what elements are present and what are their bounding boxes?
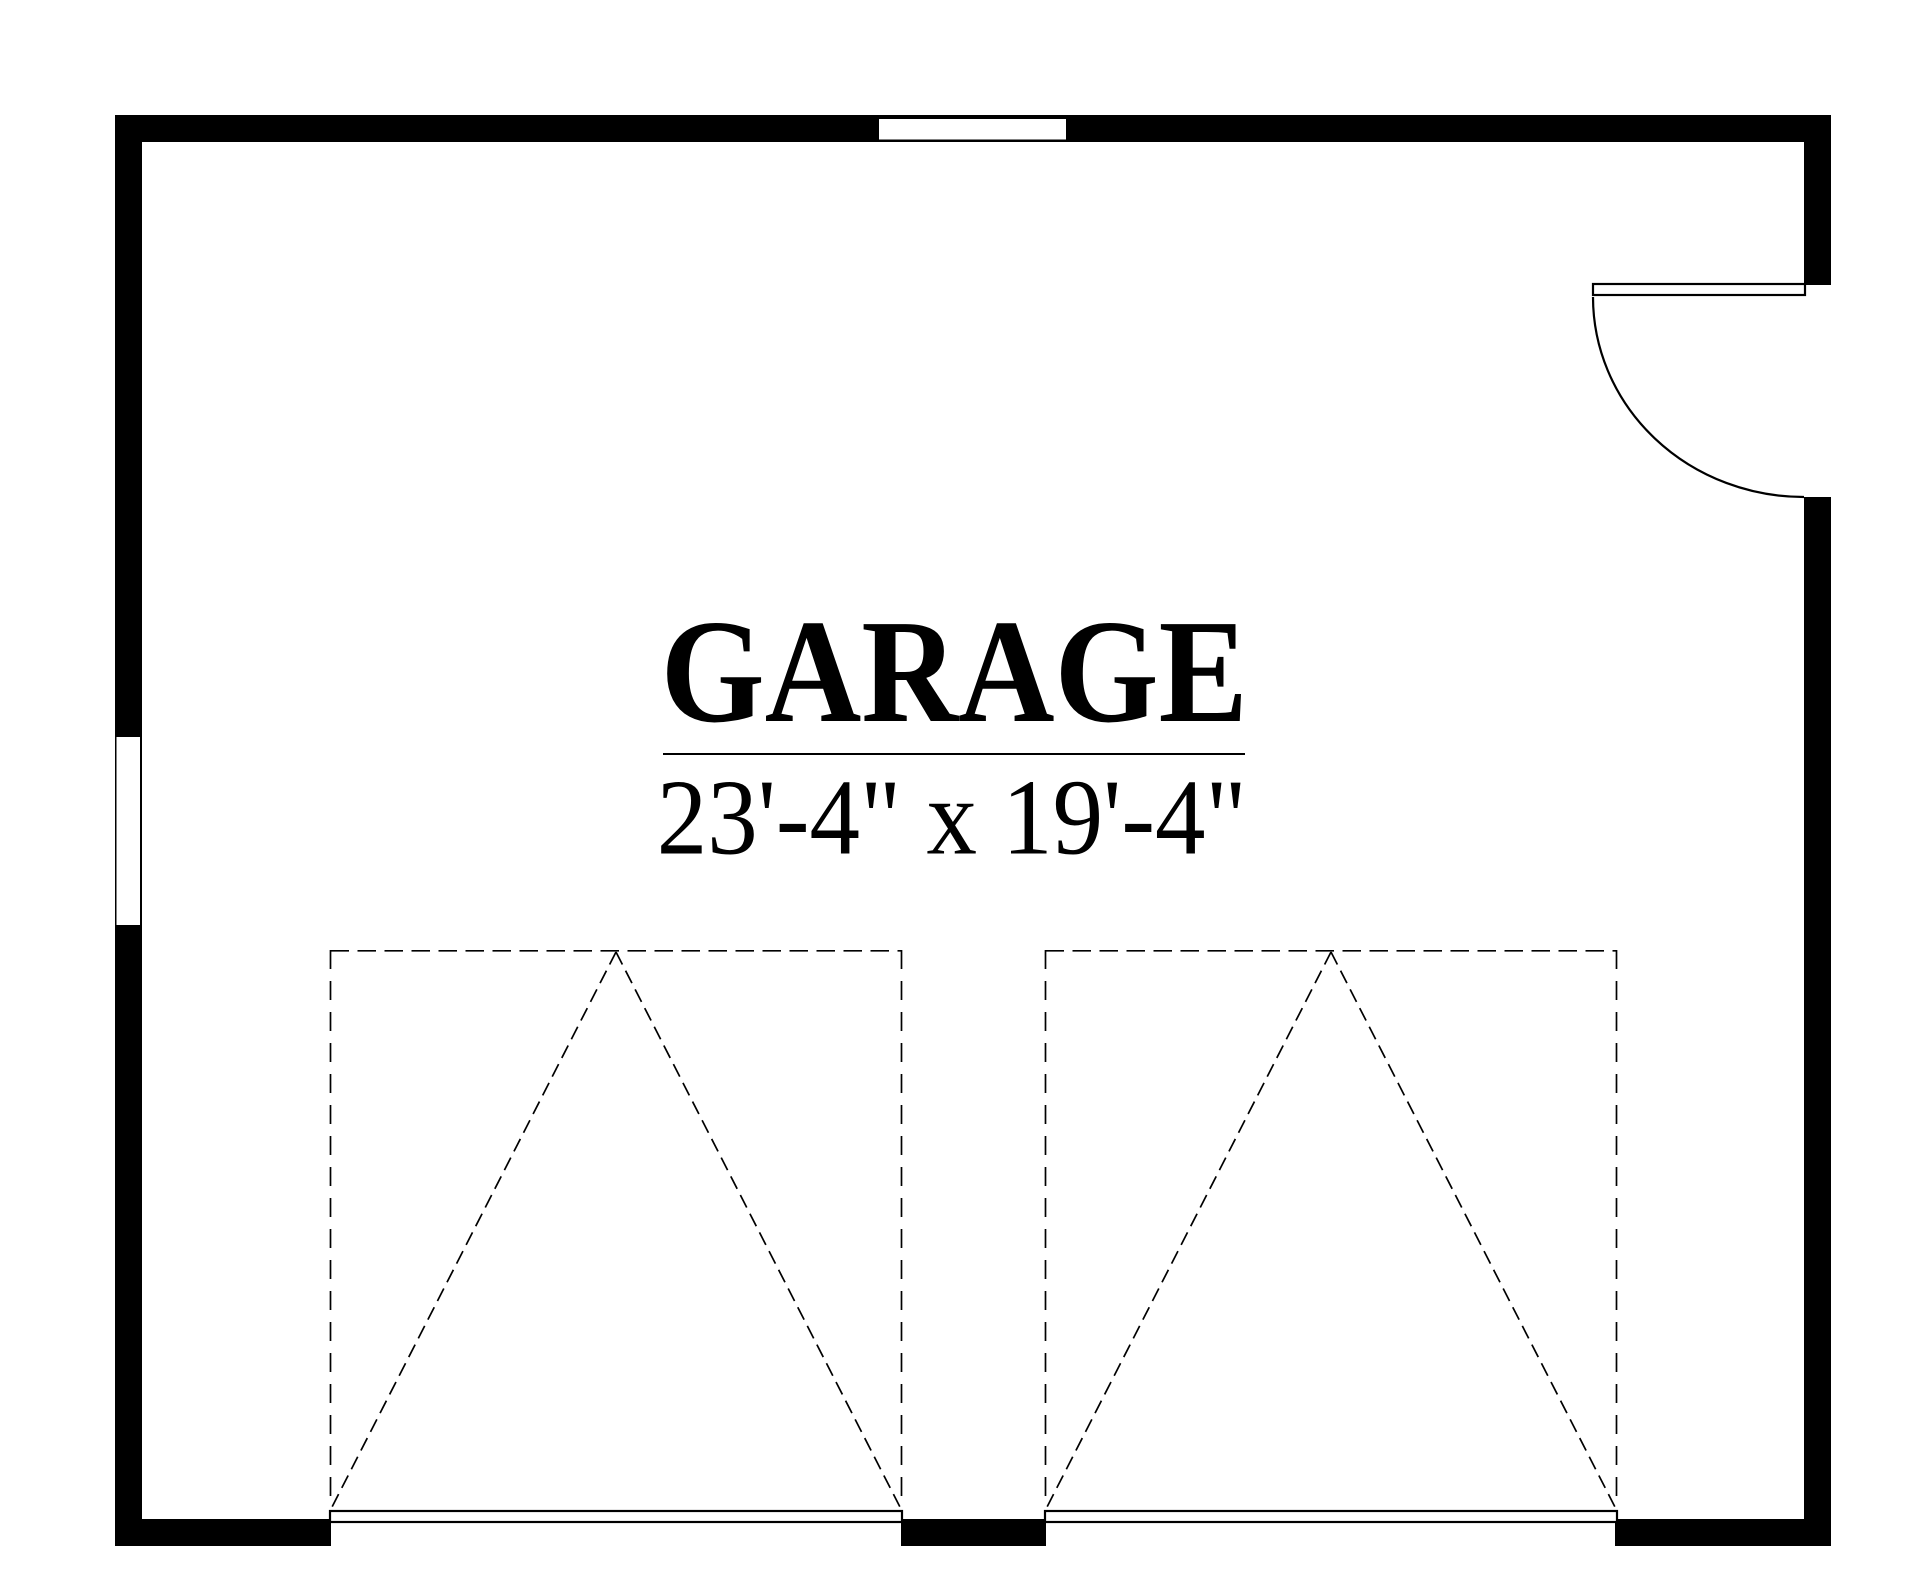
svg-text:23'-4" x 19'-4": 23'-4" x 19'-4" [657, 757, 1247, 877]
svg-text:GARAGE: GARAGE [661, 589, 1248, 754]
